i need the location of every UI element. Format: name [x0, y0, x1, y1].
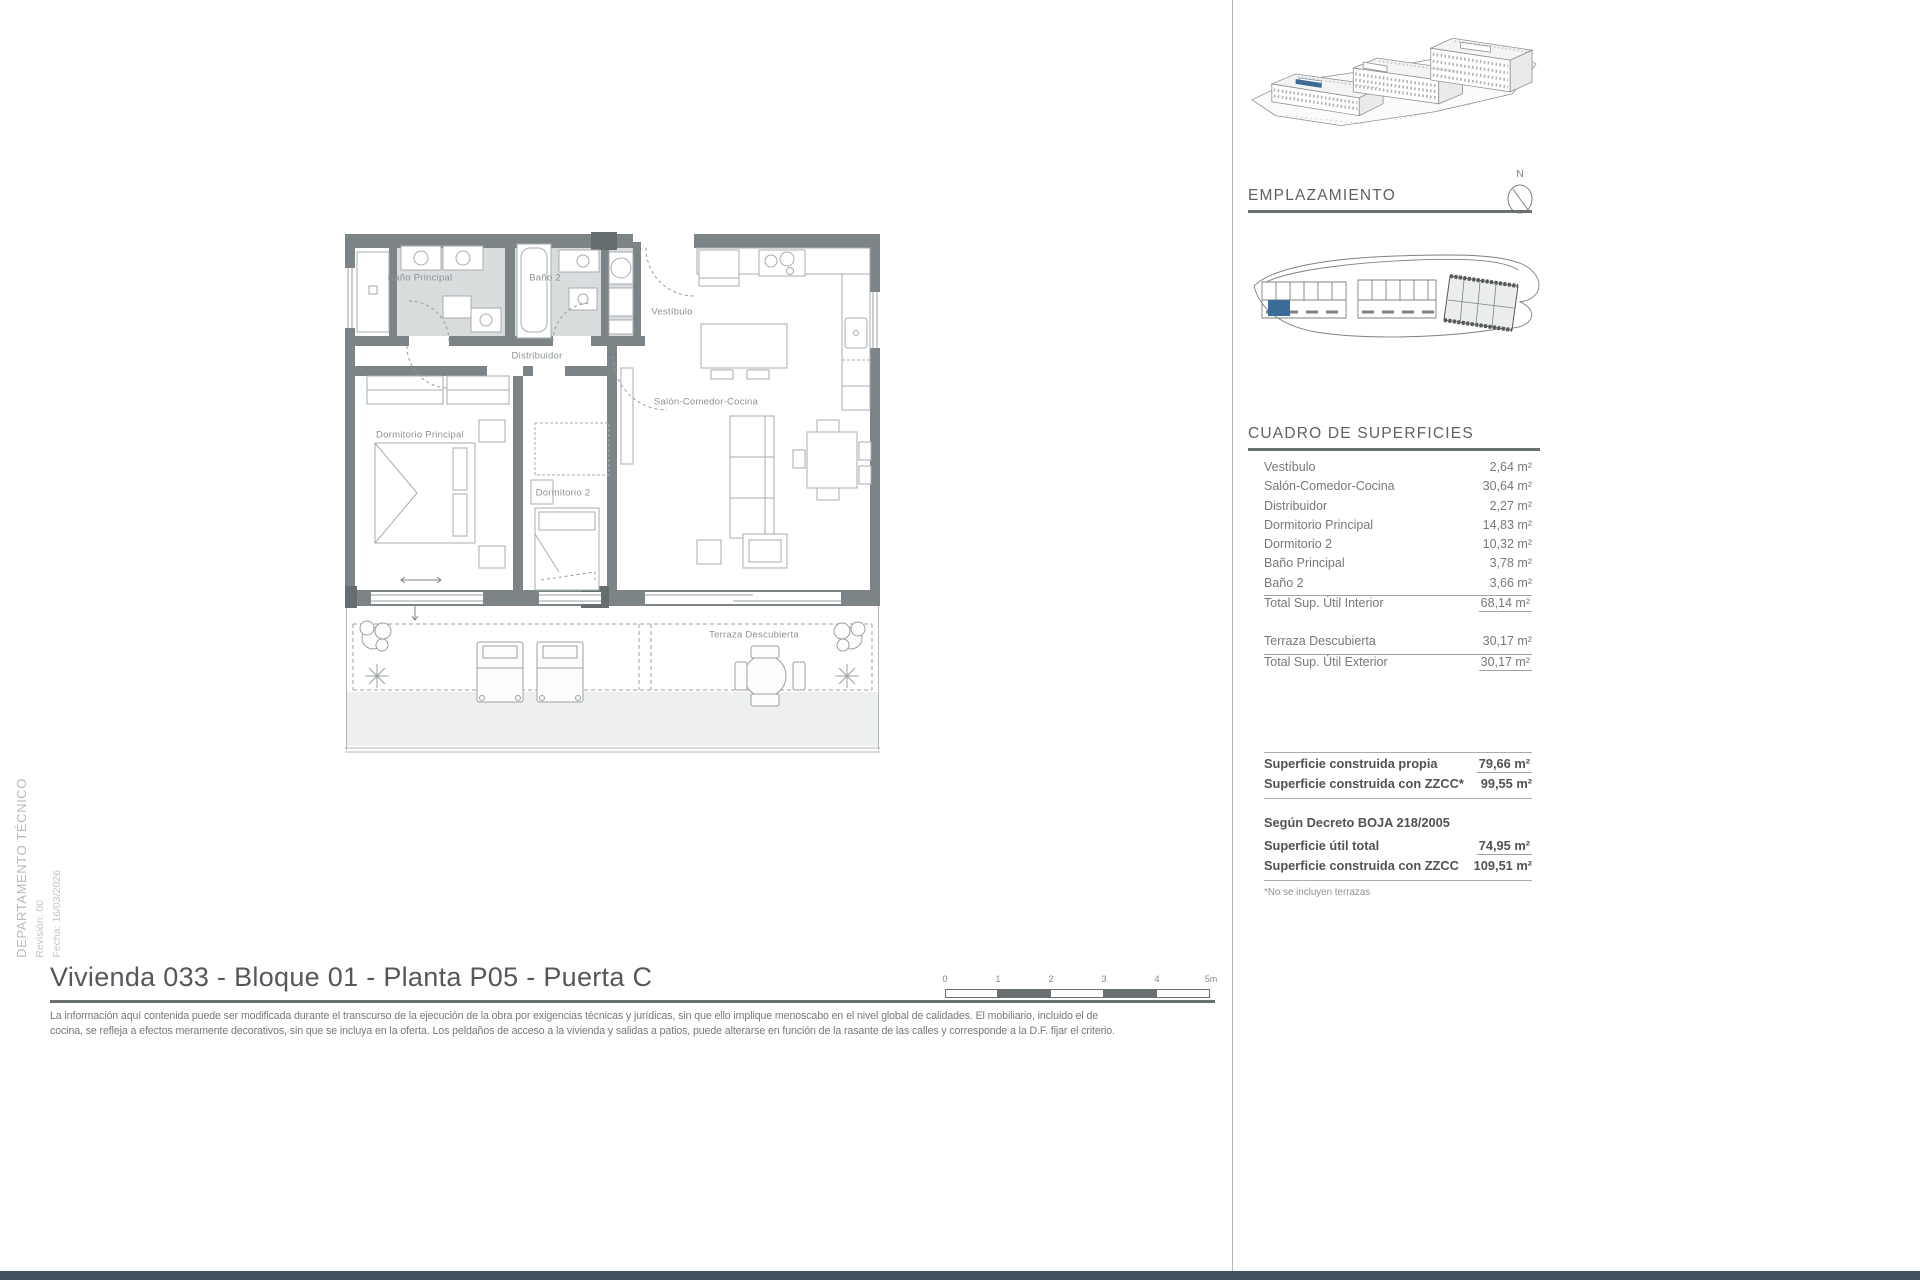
scale-segment [998, 989, 1051, 998]
table-row: Distribuidor2,27 m² [1264, 499, 1532, 518]
table-row: Salón-Comedor-Cocina30,64 m² [1264, 479, 1532, 498]
row-label: Salón-Comedor-Cocina [1264, 479, 1395, 493]
built-surface-summary: Superficie construida propia79,66 m² Sup… [1264, 752, 1532, 898]
scale-segment [1104, 989, 1157, 998]
row-value: 68,14 m² [1479, 596, 1532, 612]
row-label: Distribuidor [1264, 499, 1327, 513]
floor-plan-drawing [345, 228, 880, 758]
scale-segment [1051, 989, 1104, 998]
row-value: 30,64 m² [1483, 479, 1532, 493]
row-value: 79,66 m² [1477, 756, 1532, 773]
row-value: 14,83 m² [1483, 518, 1532, 532]
room-label-distribuidor: Distribuidor [511, 351, 562, 362]
highlighted-unit [1268, 300, 1290, 316]
row-label: Dormitorio 2 [1264, 537, 1332, 551]
table-row: Vestíbulo2,64 m² [1264, 460, 1532, 479]
row-value: 30,17 m² [1479, 655, 1532, 671]
summary-block-decreto: Superficie útil total74,95 m² Superficie… [1264, 835, 1532, 881]
row-value: 10,32 m² [1483, 537, 1532, 551]
side-note-revision: Revisión: 00 [34, 900, 46, 958]
surfaces-table: Vestíbulo2,64 m² Salón-Comedor-Cocina30,… [1264, 460, 1532, 674]
table-row: Dormitorio 210,32 m² [1264, 537, 1532, 556]
scale-segment [945, 989, 998, 998]
row-value: 3,78 m² [1490, 556, 1532, 570]
decreto-header: Según Decreto BOJA 218/2005 [1264, 815, 1532, 835]
summary-footnote: *No se incluyen terrazas [1264, 887, 1532, 898]
scale-tick-label: 2 [1048, 974, 1053, 984]
table-row-total-interior: Total Sup. Útil Interior68,14 m² [1264, 595, 1532, 615]
title-rule [50, 1000, 1215, 1003]
building-3d-sketch [1246, 6, 1544, 142]
row-label: Vestíbulo [1264, 460, 1315, 474]
emplazamiento-heading-rule [1248, 210, 1532, 213]
scale-tick-label: 5m [1205, 974, 1218, 984]
scale-segment [1157, 989, 1210, 998]
row-label: Baño 2 [1264, 576, 1304, 590]
room-label-salon-comedor-cocina: Salón-Comedor-Cocina [654, 397, 758, 408]
surfaces-heading-rule [1248, 448, 1540, 451]
scale-tick-label: 3 [1101, 974, 1106, 984]
summary-row: Superficie construida con ZZCC*99,55 m² [1264, 776, 1532, 796]
room-label-vestibulo: Vestíbulo [651, 307, 692, 318]
side-note-date: Fecha: 16/03/2026 [51, 870, 63, 958]
page-title: Vivienda 033 - Bloque 01 - Planta P05 - … [50, 962, 652, 993]
room-label-banio-2: Baño 2 [529, 273, 561, 284]
surfaces-heading: CUADRO DE SUPERFICIES [1248, 425, 1474, 443]
table-row: Baño Principal3,78 m² [1264, 556, 1532, 575]
bottom-accent-bar [0, 1271, 1920, 1280]
site-plan-sketch [1246, 244, 1546, 358]
row-value: 74,95 m² [1477, 838, 1532, 855]
row-value: 3,66 m² [1490, 576, 1532, 590]
scale-tick-label: 1 [995, 974, 1000, 984]
row-value: 30,17 m² [1483, 634, 1532, 648]
scale-bar: 0 1 2 3 4 5m [945, 974, 1211, 1000]
room-label-dormitorio-2: Dormitorio 2 [536, 488, 591, 499]
sidebar-divider [1232, 0, 1233, 1271]
emplazamiento-heading: EMPLAZAMIENTO [1248, 187, 1396, 205]
row-value: 109,51 m² [1474, 858, 1532, 873]
scale-bar-segments [945, 989, 1210, 998]
scale-tick-label: 4 [1154, 974, 1159, 984]
row-value: 99,55 m² [1481, 776, 1532, 791]
table-row-total-exterior: Total Sup. Útil Exterior30,17 m² [1264, 654, 1532, 674]
row-label: Superficie construida con ZZCC* [1264, 776, 1464, 791]
scale-tick-label: 0 [942, 974, 947, 984]
disclaimer-line-2: cocina, se refleja a efectos meramente d… [50, 1024, 1216, 1039]
side-note-department: DEPARTAMENTO TÉCNICO [14, 778, 29, 958]
side-note: DEPARTAMENTO TÉCNICO Revisión: 00 Fecha:… [14, 762, 63, 958]
summary-row: Superficie construida propia79,66 m² [1264, 756, 1532, 776]
row-value: 2,27 m² [1490, 499, 1532, 513]
summary-row: Superficie útil total74,95 m² [1264, 838, 1532, 858]
room-label-dormitorio-principal: Dormitorio Principal [376, 430, 464, 441]
disclaimer: La información aquí contenida puede ser … [50, 1009, 1216, 1039]
floor-plan: Baño Principal Baño 2 Vestíbulo Distribu… [345, 228, 880, 758]
row-label: Baño Principal [1264, 556, 1345, 570]
summary-row: Superficie construida con ZZCC109,51 m² [1264, 858, 1532, 878]
table-row: Dormitorio Principal14,83 m² [1264, 518, 1532, 537]
row-label: Superficie construida propia [1264, 756, 1438, 771]
room-label-terraza-descubierta: Terraza Descubierta [709, 630, 799, 641]
disclaimer-line-1: La información aquí contenida puede ser … [50, 1009, 1216, 1024]
table-row: Baño 23,66 m² [1264, 576, 1532, 595]
row-label: Terraza Descubierta [1264, 634, 1376, 648]
row-label: Total Sup. Útil Exterior [1264, 655, 1388, 669]
room-label-banio-principal: Baño Principal [388, 273, 453, 284]
table-row-terraza: Terraza Descubierta30,17 m² [1264, 634, 1532, 653]
compass-north-label: N [1498, 168, 1542, 180]
row-label: Total Sup. Útil Interior [1264, 596, 1384, 610]
plan-sheet: { "page": { "title": "Vivienda 033 - Blo… [0, 0, 1920, 1280]
row-value: 2,64 m² [1490, 460, 1532, 474]
row-label: Superficie construida con ZZCC [1264, 858, 1459, 873]
row-label: Dormitorio Principal [1264, 518, 1373, 532]
summary-block-construida: Superficie construida propia79,66 m² Sup… [1264, 752, 1532, 799]
row-label: Superficie útil total [1264, 838, 1379, 853]
